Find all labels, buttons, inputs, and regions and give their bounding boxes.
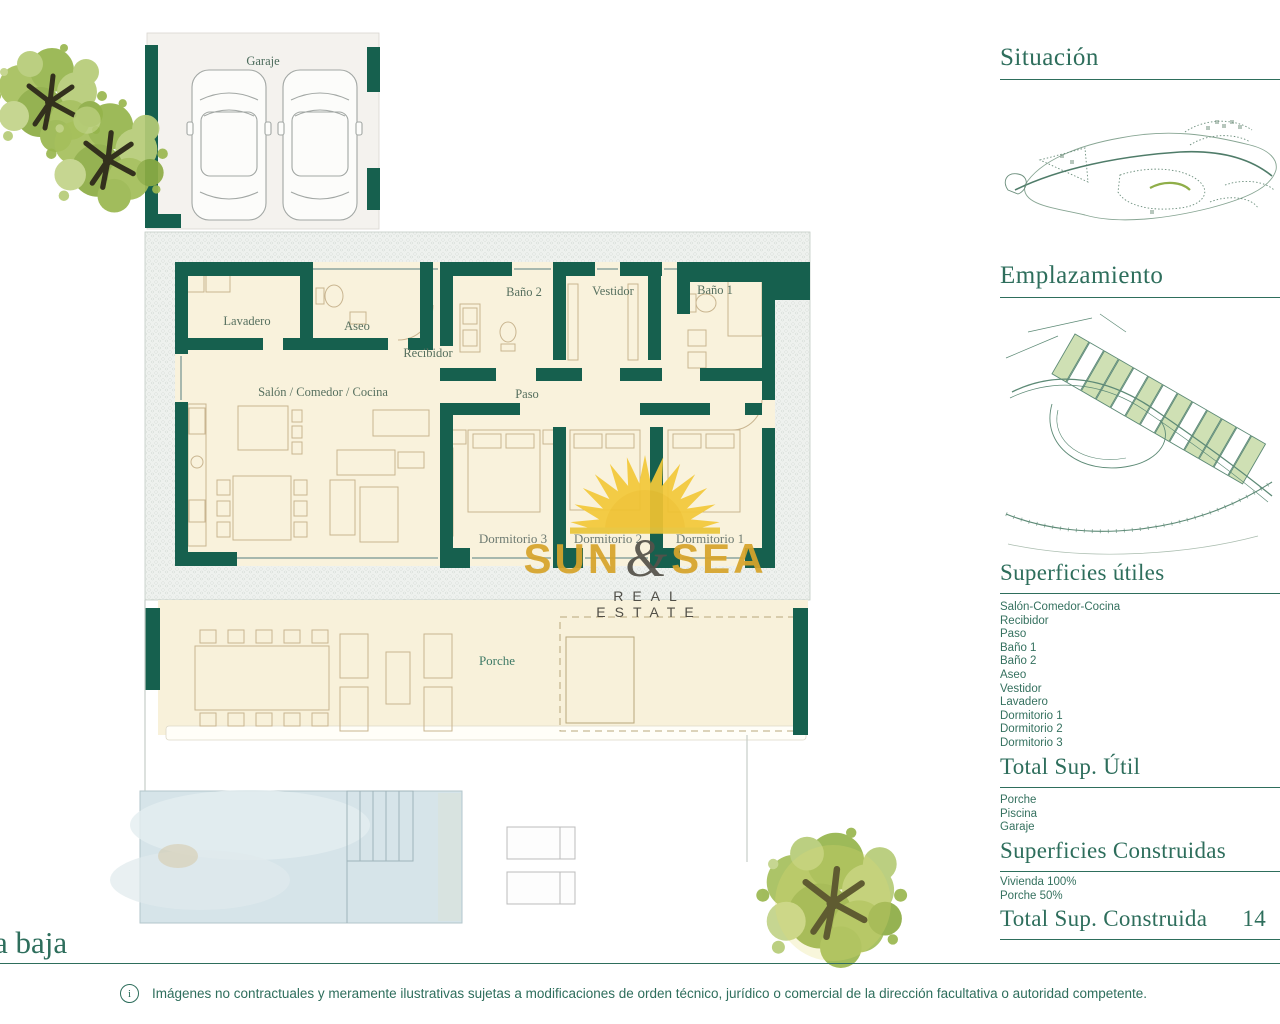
list-item: Vivienda 100% xyxy=(1000,876,1280,890)
exterior-list: Porche Piscina Garaje xyxy=(1000,794,1280,835)
section-superficies-utiles: Superficies útiles xyxy=(1000,560,1280,594)
superficies-construidas-title: Superficies Construidas xyxy=(1000,838,1280,864)
list-item: Recibidor xyxy=(1000,615,1280,629)
list-item: Dormitorio 2 xyxy=(1000,723,1280,737)
info-icon: i xyxy=(120,984,139,1003)
sun-icon xyxy=(570,445,720,535)
logo-ampersand: & xyxy=(625,527,667,589)
section-emplazamiento: Emplazamiento xyxy=(1000,262,1280,298)
emplazamiento-title: Emplazamiento xyxy=(1000,262,1280,290)
section-superficies-construidas: Superficies Construidas xyxy=(1000,838,1280,872)
total-construida-rule xyxy=(1000,939,1280,940)
superficies-utiles-rule xyxy=(1000,593,1280,594)
section-total-util: Total Sup. Útil xyxy=(1000,754,1280,788)
list-item: Piscina xyxy=(1000,808,1280,822)
section-total-construida: Total Sup. Construida 14 xyxy=(1000,906,1280,940)
emplazamiento-map xyxy=(1000,306,1280,556)
total-util-rule xyxy=(1000,787,1280,788)
brochure-page: Garaje Lavadero Aseo Recibidor Baño 2 Ve… xyxy=(0,0,1280,1024)
superficies-utiles-list: Salón-Comedor-Cocina Recibidor Paso Baño… xyxy=(1000,601,1280,751)
label-garaje: Garaje xyxy=(246,54,280,68)
list-item: Garaje xyxy=(1000,821,1280,835)
situacion-title: Situación xyxy=(1000,44,1280,72)
floor-title-rule xyxy=(0,963,1280,964)
footer: i Imágenes no contractuales y meramente … xyxy=(0,984,1280,1003)
superficies-utiles-title: Superficies útiles xyxy=(1000,560,1280,586)
list-item: Porche 50% xyxy=(1000,890,1280,904)
construidas-list: Vivienda 100% Porche 50% xyxy=(1000,876,1280,903)
label-aseo: Aseo xyxy=(344,319,370,333)
label-paso: Paso xyxy=(515,387,539,401)
list-item: Paso xyxy=(1000,628,1280,642)
situacion-map xyxy=(1000,90,1280,252)
label-salon: Salón / Comedor / Cocina xyxy=(258,385,388,399)
logo-word-sun: SUN xyxy=(523,535,621,583)
floor-title: a baja xyxy=(0,925,67,961)
logo-word-sea: SEA xyxy=(671,535,766,583)
situacion-rule xyxy=(1000,79,1280,80)
list-item: Dormitorio 1 xyxy=(1000,710,1280,724)
list-item: Vestidor xyxy=(1000,683,1280,697)
sun-and-sea-logo: SUN & SEA REAL ESTATE xyxy=(545,445,745,620)
list-item: Dormitorio 3 xyxy=(1000,737,1280,751)
label-lavadero: Lavadero xyxy=(223,314,270,328)
tree-cluster-top-left xyxy=(0,44,168,213)
sun-loungers xyxy=(507,827,575,904)
label-recibidor: Recibidor xyxy=(403,346,453,360)
sidebar: Situación Emplazamiento xyxy=(1000,0,1280,1024)
label-bano2: Baño 2 xyxy=(506,285,542,299)
label-porche: Porche xyxy=(479,653,515,668)
total-util-title: Total Sup. Útil xyxy=(1000,754,1280,780)
emplazamiento-rule xyxy=(1000,297,1280,298)
list-item: Baño 1 xyxy=(1000,642,1280,656)
section-situacion: Situación xyxy=(1000,44,1280,80)
list-item: Salón-Comedor-Cocina xyxy=(1000,601,1280,615)
label-bano1: Baño 1 xyxy=(697,283,733,297)
tree-bottom-right xyxy=(756,828,907,968)
list-item: Aseo xyxy=(1000,669,1280,683)
pool xyxy=(110,790,462,923)
list-item: Porche xyxy=(1000,794,1280,808)
list-item: Lavadero xyxy=(1000,696,1280,710)
total-construida-title: Total Sup. Construida xyxy=(1000,906,1207,932)
superficies-construidas-rule xyxy=(1000,871,1280,872)
floor-plan: Garaje Lavadero Aseo Recibidor Baño 2 Ve… xyxy=(0,0,1000,975)
disclaimer-text: Imágenes no contractuales y meramente il… xyxy=(152,986,1147,1001)
list-item: Baño 2 xyxy=(1000,655,1280,669)
total-construida-value: 14 xyxy=(1242,906,1266,932)
logo-tagline: REAL ESTATE xyxy=(545,588,745,620)
label-vestidor: Vestidor xyxy=(592,284,635,298)
